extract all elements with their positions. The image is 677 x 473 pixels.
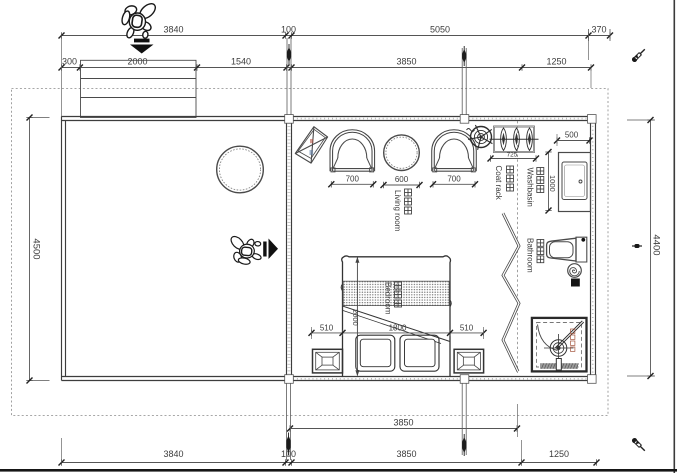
- svg-text:Bathroom: Bathroom: [526, 238, 535, 273]
- svg-text:600: 600: [395, 175, 409, 184]
- svg-text:2000: 2000: [351, 309, 360, 326]
- svg-text:5050: 5050: [430, 25, 450, 35]
- svg-text:510: 510: [320, 323, 334, 332]
- svg-text:3850: 3850: [393, 418, 413, 428]
- svg-text:1540: 1540: [231, 57, 251, 67]
- svg-text:Coat rack: Coat rack: [494, 166, 503, 201]
- svg-text:2000: 2000: [127, 57, 147, 67]
- svg-text:Living room: Living room: [393, 190, 402, 232]
- svg-text:725: 725: [507, 152, 518, 159]
- svg-text:700: 700: [447, 175, 461, 184]
- svg-text:4400: 4400: [651, 234, 662, 255]
- svg-text:3840: 3840: [163, 449, 183, 459]
- svg-text:Washbasin: Washbasin: [526, 168, 535, 207]
- svg-text:4500: 4500: [31, 238, 42, 259]
- svg-text:510: 510: [460, 323, 474, 332]
- svg-text:500: 500: [565, 131, 579, 140]
- svg-text:Bedroom: Bedroom: [384, 282, 393, 315]
- svg-text:3850: 3850: [396, 449, 416, 459]
- svg-text:3840: 3840: [163, 25, 183, 35]
- svg-text:1250: 1250: [546, 57, 566, 67]
- svg-text:1000: 1000: [548, 175, 557, 192]
- svg-text:1800: 1800: [389, 323, 407, 332]
- svg-text:300: 300: [62, 57, 77, 67]
- svg-text:100: 100: [281, 25, 296, 35]
- svg-text:700: 700: [346, 175, 360, 184]
- svg-text:1250: 1250: [549, 449, 569, 459]
- svg-text:370: 370: [591, 25, 606, 35]
- svg-text:3850: 3850: [396, 57, 416, 67]
